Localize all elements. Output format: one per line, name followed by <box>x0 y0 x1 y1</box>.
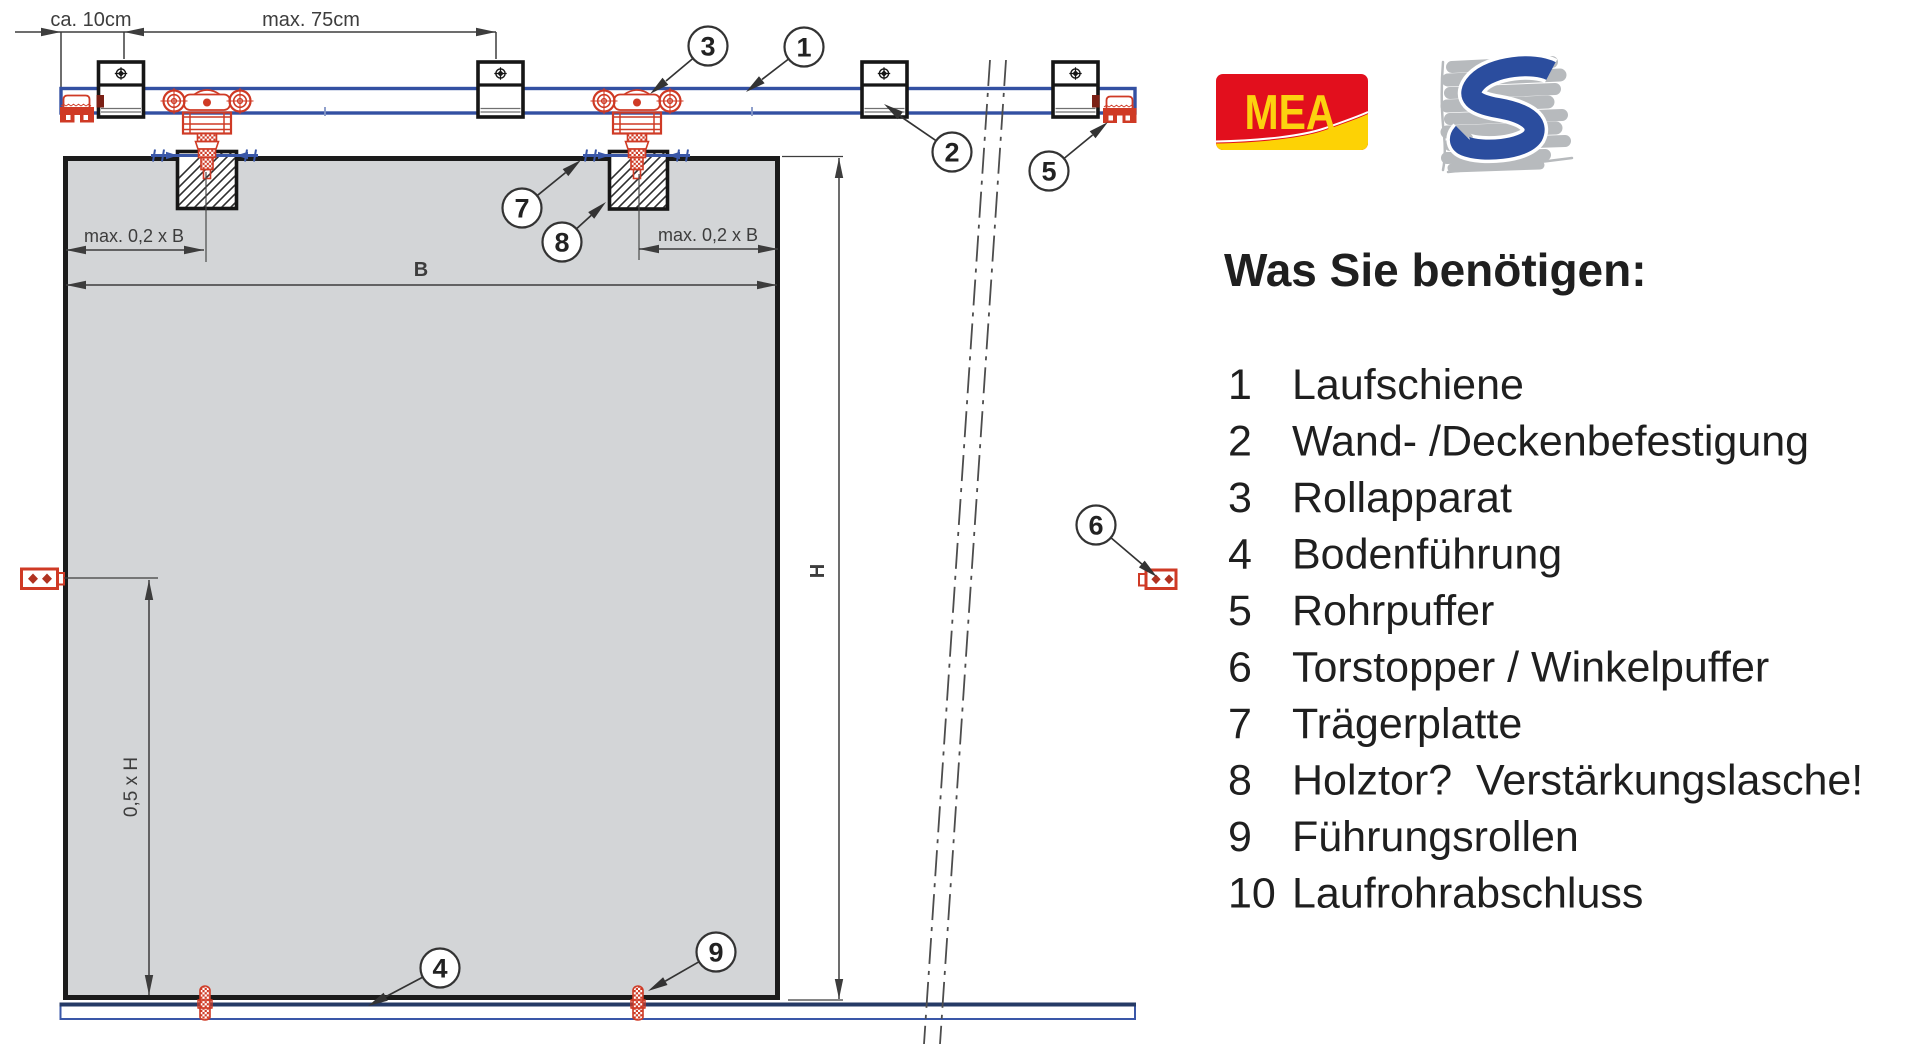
svg-text:Laufschiene: Laufschiene <box>1292 361 1524 409</box>
svg-text:Rollapparat: Rollapparat <box>1292 474 1512 522</box>
svg-text:MEA: MEA <box>1245 86 1336 140</box>
svg-text:8: 8 <box>1228 757 1252 805</box>
svg-text:5: 5 <box>1228 587 1252 635</box>
svg-text:1: 1 <box>1228 361 1252 409</box>
svg-text:B: B <box>414 259 428 281</box>
svg-text:Laufrohrabschluss: Laufrohrabschluss <box>1292 870 1643 918</box>
svg-text:6: 6 <box>1228 644 1252 692</box>
svg-text:4: 4 <box>432 954 447 984</box>
svg-text:9: 9 <box>708 938 723 968</box>
svg-text:10: 10 <box>1228 870 1276 918</box>
svg-text:Was Sie benötigen:: Was Sie benötigen: <box>1224 244 1647 296</box>
svg-text:Rohrpuffer: Rohrpuffer <box>1292 587 1494 635</box>
svg-text:6: 6 <box>1088 511 1103 541</box>
svg-text:3: 3 <box>700 32 715 62</box>
svg-text:Bodenführung: Bodenführung <box>1292 531 1562 579</box>
svg-text:8: 8 <box>554 228 569 258</box>
svg-text:7: 7 <box>1228 700 1252 748</box>
svg-text:7: 7 <box>514 194 529 224</box>
svg-text:max. 0,2 x B: max. 0,2 x B <box>658 225 758 245</box>
svg-text:3: 3 <box>1228 474 1252 522</box>
svg-text:Führungsrollen: Führungsrollen <box>1292 813 1579 861</box>
svg-text:4: 4 <box>1228 531 1252 579</box>
svg-text:9: 9 <box>1228 813 1252 861</box>
svg-text:2: 2 <box>1228 418 1252 466</box>
svg-text:0,5 x H: 0,5 x H <box>121 757 142 817</box>
svg-text:2: 2 <box>944 138 959 168</box>
svg-text:Trägerplatte: Trägerplatte <box>1292 700 1522 748</box>
svg-text:ca. 10cm: ca. 10cm <box>50 9 131 31</box>
svg-text:Holztor? Verstärkungslasche!: Holztor? Verstärkungslasche! <box>1292 757 1863 805</box>
svg-text:Wand- /Deckenbefestigung: Wand- /Deckenbefestigung <box>1292 418 1809 466</box>
svg-text:max. 0,2 x B: max. 0,2 x B <box>84 226 184 246</box>
svg-text:H: H <box>807 564 829 578</box>
svg-text:1: 1 <box>796 33 811 63</box>
svg-text:5: 5 <box>1041 157 1056 187</box>
svg-text:Torstopper / Winkelpuffer: Torstopper / Winkelpuffer <box>1292 644 1769 692</box>
svg-text:max. 75cm: max. 75cm <box>262 9 360 31</box>
